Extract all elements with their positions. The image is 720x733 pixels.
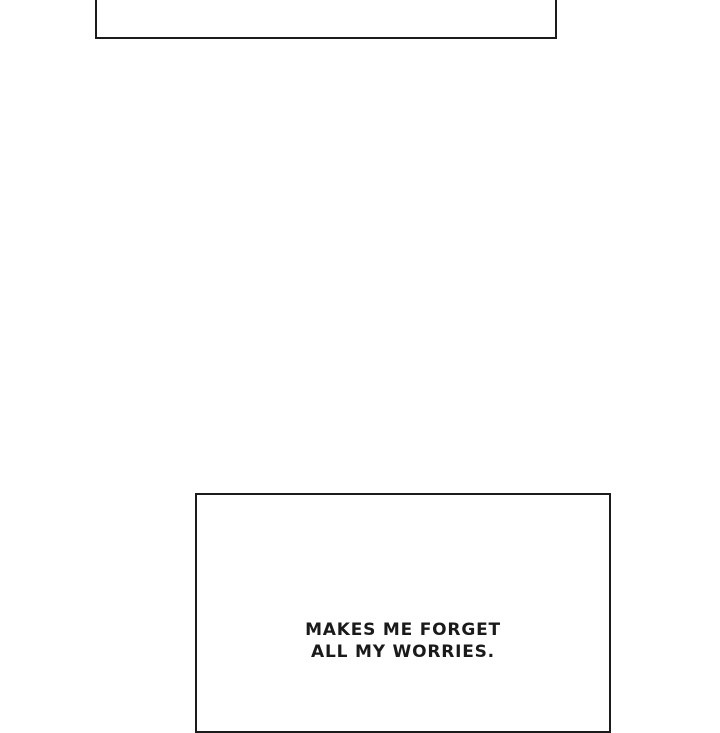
empty-panel-top (95, 0, 557, 39)
caption-text: MAKES ME FORGET ALL MY WORRIES. (197, 619, 609, 663)
caption-line-2: ALL MY WORRIES. (197, 641, 609, 663)
speech-panel-bottom: MAKES ME FORGET ALL MY WORRIES. (195, 493, 611, 733)
comic-page: MAKES ME FORGET ALL MY WORRIES. (0, 0, 720, 700)
caption-line-1: MAKES ME FORGET (197, 619, 609, 641)
